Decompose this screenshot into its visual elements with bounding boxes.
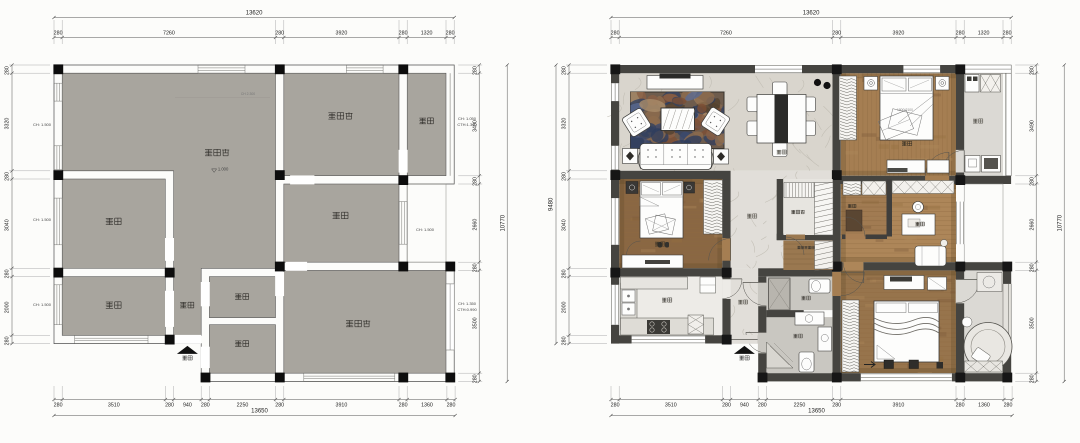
svg-text:280: 280 xyxy=(473,374,479,383)
svg-text:280: 280 xyxy=(1030,263,1036,272)
svg-text:3040: 3040 xyxy=(562,219,568,231)
svg-text:3320: 3320 xyxy=(5,118,11,130)
svg-text:3920: 3920 xyxy=(893,31,905,37)
svg-text:3500: 3500 xyxy=(473,317,479,329)
svg-text:280: 280 xyxy=(832,31,841,37)
svg-text:3500: 3500 xyxy=(1030,317,1036,329)
svg-text:CH: 1.500: CH: 1.500 xyxy=(33,302,52,307)
svg-text:280: 280 xyxy=(562,269,568,278)
svg-text:280: 280 xyxy=(447,403,456,409)
svg-text:280: 280 xyxy=(473,177,479,186)
svg-text:280: 280 xyxy=(473,66,479,75)
svg-text:7260: 7260 xyxy=(720,31,732,37)
svg-text:CH: 1.500: CH: 1.500 xyxy=(33,217,52,222)
svg-text:9480: 9480 xyxy=(549,197,555,211)
svg-text:3910: 3910 xyxy=(893,403,905,409)
svg-text:280: 280 xyxy=(611,403,620,409)
svg-text:2250: 2250 xyxy=(794,403,806,409)
svg-text:CH: 1.350: CH: 1.350 xyxy=(458,301,477,306)
svg-text:940: 940 xyxy=(183,403,192,409)
svg-text:280: 280 xyxy=(722,403,731,409)
svg-text:940: 940 xyxy=(740,403,749,409)
svg-text:1320: 1320 xyxy=(978,31,990,37)
svg-text:280: 280 xyxy=(562,336,568,345)
svg-text:280: 280 xyxy=(165,403,174,409)
svg-text:3910: 3910 xyxy=(336,403,348,409)
svg-text:3040: 3040 xyxy=(5,219,11,231)
svg-text:3490: 3490 xyxy=(473,120,479,132)
svg-text:280: 280 xyxy=(275,403,284,409)
svg-text:2000: 2000 xyxy=(562,301,568,313)
svg-text:280: 280 xyxy=(562,172,568,181)
svg-text:13620: 13620 xyxy=(246,11,263,17)
svg-text:2000: 2000 xyxy=(5,301,11,313)
svg-text:2250: 2250 xyxy=(237,403,249,409)
svg-text:280: 280 xyxy=(5,66,11,75)
svg-text:280: 280 xyxy=(956,403,965,409)
svg-text:280: 280 xyxy=(5,172,11,181)
svg-text:3490: 3490 xyxy=(1030,120,1036,132)
svg-text:1360: 1360 xyxy=(421,403,433,409)
svg-text:280: 280 xyxy=(562,66,568,75)
svg-text:280: 280 xyxy=(1030,66,1036,75)
svg-text:1800*2100: 1800*2100 xyxy=(897,108,913,112)
svg-text:280: 280 xyxy=(1003,31,1012,37)
svg-text:280: 280 xyxy=(1004,403,1013,409)
svg-text:280: 280 xyxy=(956,31,965,37)
svg-text:13650: 13650 xyxy=(251,409,268,415)
svg-text:280: 280 xyxy=(54,403,63,409)
svg-text:280: 280 xyxy=(1030,374,1036,383)
svg-text:1320: 1320 xyxy=(421,31,433,37)
svg-text:280: 280 xyxy=(473,263,479,272)
svg-text:280: 280 xyxy=(5,269,11,278)
svg-text:280: 280 xyxy=(5,336,11,345)
svg-text:280: 280 xyxy=(758,403,767,409)
svg-text:CTH:0.990: CTH:0.990 xyxy=(457,307,477,312)
svg-text:13620: 13620 xyxy=(803,11,820,17)
svg-text:280: 280 xyxy=(54,31,63,37)
svg-text:3510: 3510 xyxy=(665,403,677,409)
svg-text:3320: 3320 xyxy=(562,118,568,130)
svg-text:CH 2.300: CH 2.300 xyxy=(241,92,255,96)
svg-text:280: 280 xyxy=(611,31,620,37)
svg-text:280: 280 xyxy=(1030,177,1036,186)
svg-text:280: 280 xyxy=(399,403,408,409)
svg-text:2660: 2660 xyxy=(1030,219,1036,231)
svg-text:280: 280 xyxy=(201,403,210,409)
svg-text:1360: 1360 xyxy=(978,403,990,409)
svg-text:280: 280 xyxy=(399,31,408,37)
svg-text:10770: 10770 xyxy=(501,214,507,231)
svg-text:280: 280 xyxy=(446,31,455,37)
svg-text:280: 280 xyxy=(275,31,284,37)
svg-text:280: 280 xyxy=(832,403,841,409)
svg-text:CH: 1.500: CH: 1.500 xyxy=(416,227,435,232)
svg-text:CH: 1.500: CH: 1.500 xyxy=(33,122,52,127)
svg-text:3510: 3510 xyxy=(108,403,120,409)
svg-text:10770: 10770 xyxy=(1058,214,1064,231)
svg-text:7260: 7260 xyxy=(163,31,175,37)
svg-text:13650: 13650 xyxy=(808,409,825,415)
svg-text:1.000: 1.000 xyxy=(218,166,229,171)
svg-text:3920: 3920 xyxy=(336,31,348,37)
svg-text:2660: 2660 xyxy=(473,219,479,231)
